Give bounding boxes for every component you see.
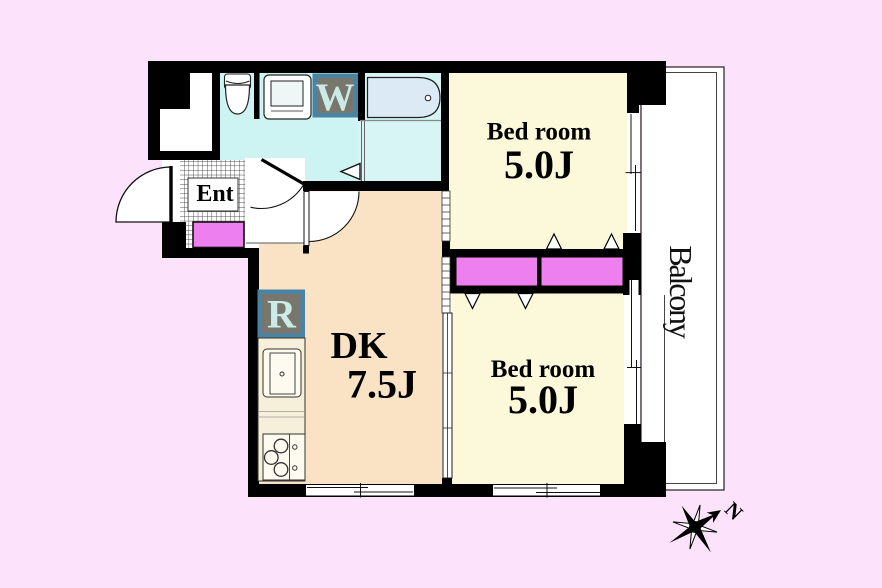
- svg-text:7.5J: 7.5J: [347, 362, 417, 407]
- svg-text:Ent: Ent: [196, 181, 233, 207]
- svg-text:W: W: [316, 76, 355, 119]
- svg-text:5.0J: 5.0J: [504, 142, 574, 187]
- svg-text:5.0J: 5.0J: [508, 377, 578, 422]
- svg-text:R: R: [267, 292, 297, 337]
- svg-text:Balcony: Balcony: [663, 245, 699, 338]
